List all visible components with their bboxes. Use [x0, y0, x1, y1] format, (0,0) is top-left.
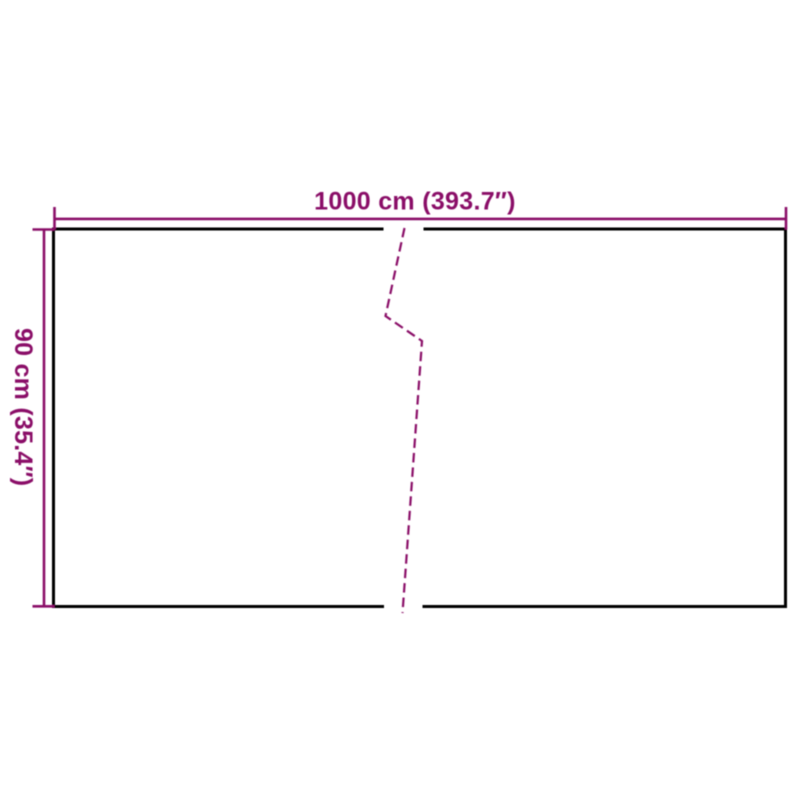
- svg-text:1000 cm (393.7″): 1000 cm (393.7″): [314, 187, 516, 215]
- svg-text:90 cm (35.4″): 90 cm (35.4″): [9, 328, 37, 486]
